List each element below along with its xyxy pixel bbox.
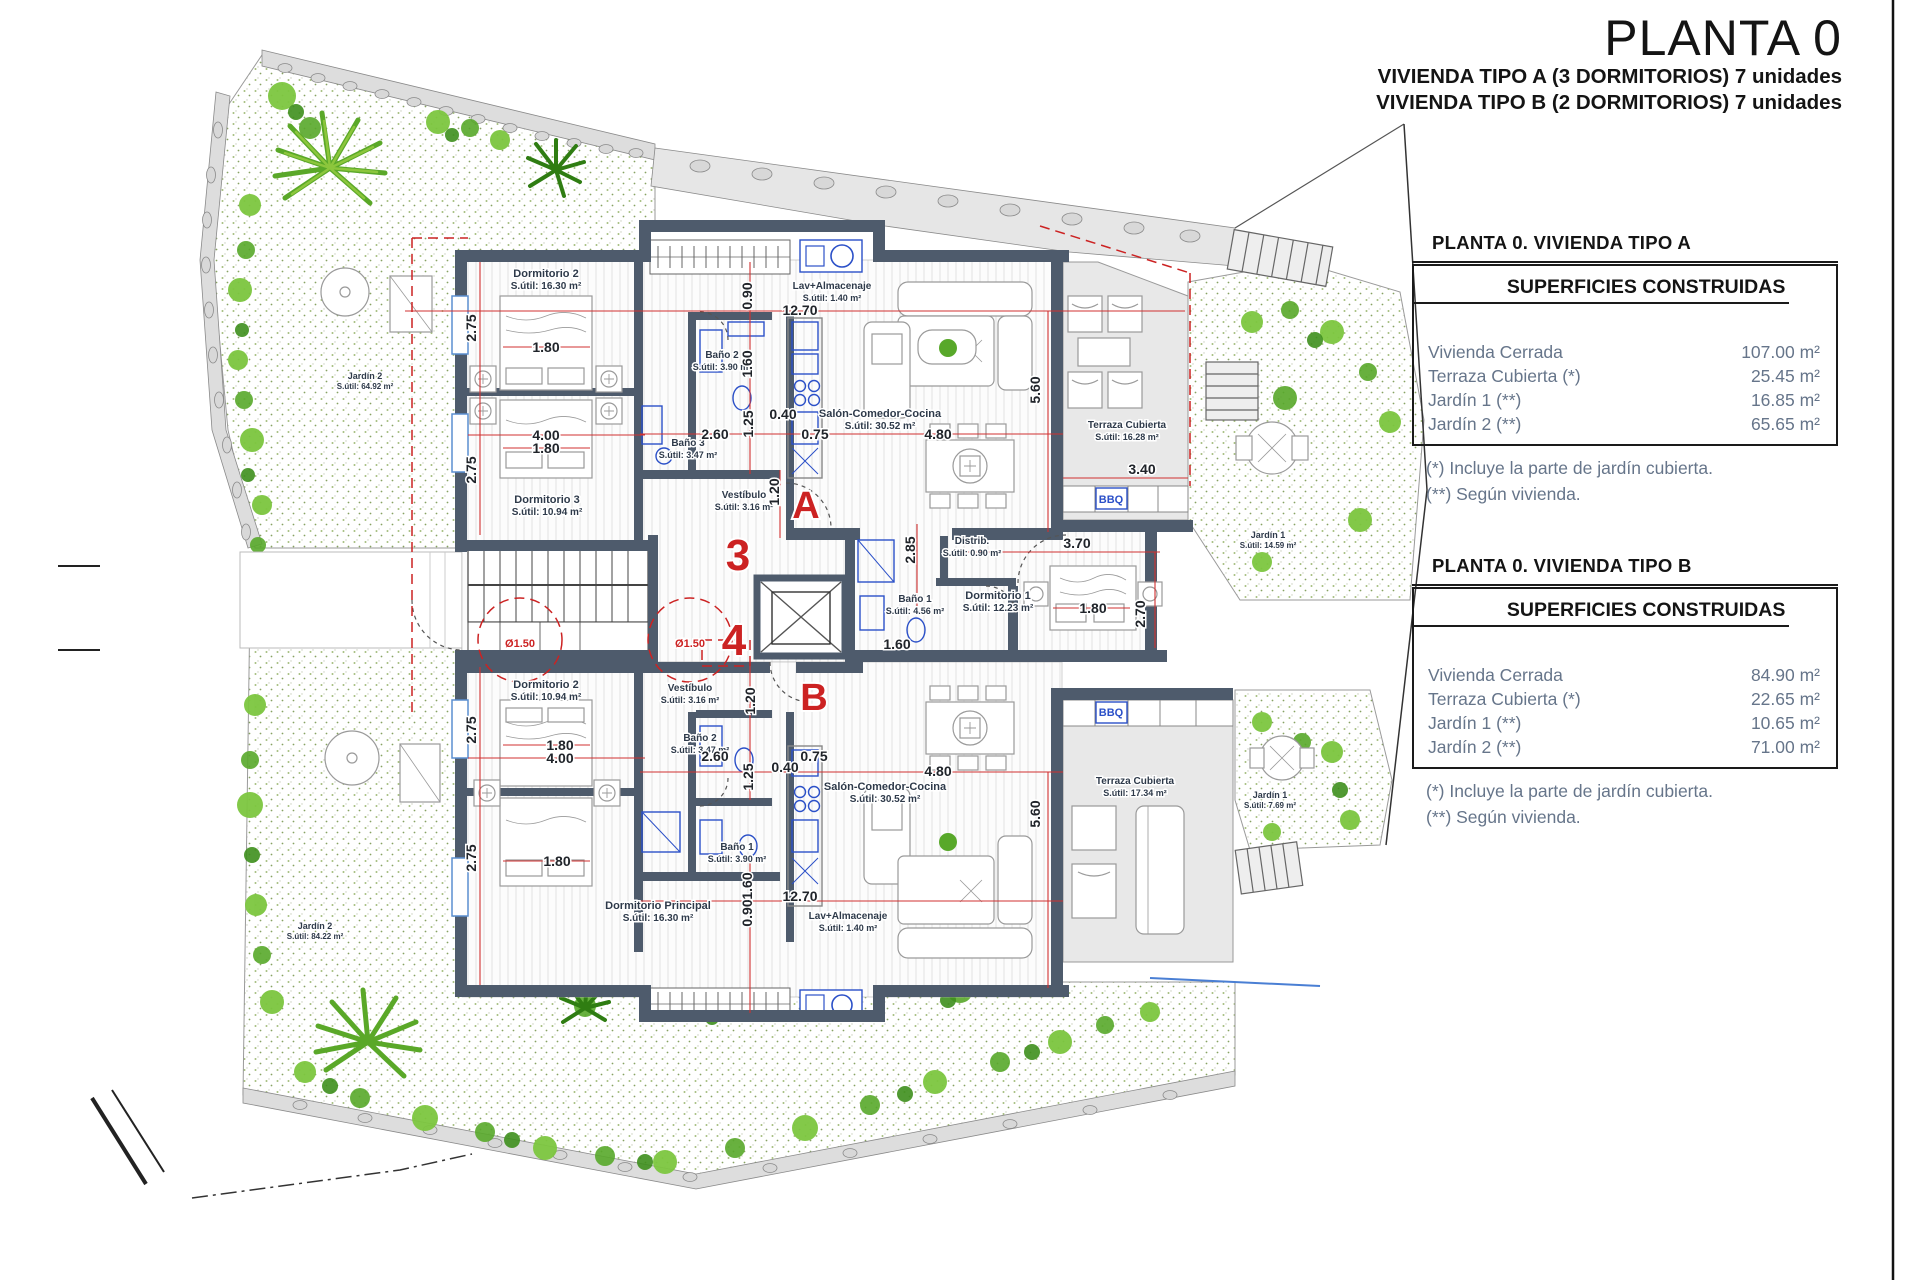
room-area-label: S.útil: 16.30 m² <box>623 913 694 924</box>
surface-row: Terraza Cubierta (*) 25.45 m² <box>1428 364 1820 388</box>
bbq-label: BBQ <box>1099 494 1124 506</box>
dimension-label: 2.70 <box>1132 600 1148 627</box>
dimension-label: 0.90 <box>739 899 755 926</box>
unit-marker-label: 3 <box>726 531 750 580</box>
dimension-label: 2.75 <box>463 456 479 483</box>
room-name-label: Dormitorio 2 <box>513 679 578 691</box>
room-name-label: Jardín 2 <box>348 371 383 381</box>
dimension-label: 5.60 <box>1027 800 1043 827</box>
room-name-label: Distrib. <box>955 536 990 547</box>
room-name-label: Vestíbulo <box>668 683 712 694</box>
room-area-label: S.útil: 30.52 m² <box>845 421 916 432</box>
dimension-label: 2.85 <box>902 536 918 563</box>
dimension-label: 0.90 <box>739 282 755 309</box>
room-area-label: S.útil: 7.69 m² <box>1244 801 1296 810</box>
dimension-label: 1.80 <box>532 440 559 456</box>
panel-a-notes: (*) Incluye la parte de jardín cubierta.… <box>1412 455 1838 507</box>
surface-value: 65.65 m² <box>1751 412 1820 436</box>
elevator <box>757 578 845 656</box>
room-area-label: S.útil: 3.16 m² <box>715 502 774 512</box>
dimension-label: 1.20 <box>742 687 758 714</box>
entrance-walkway <box>240 552 462 648</box>
surface-label: Vivienda Cerrada <box>1428 663 1563 687</box>
surface-value: 84.90 m² <box>1751 663 1820 687</box>
room-name-label: Dormitorio 1 <box>965 590 1030 602</box>
dimension-label: 1.25 <box>740 763 756 790</box>
dimension-label: 12.70 <box>782 888 817 904</box>
room-name-label: Baño 3 <box>671 438 705 449</box>
dimension-label: 0.75 <box>801 426 828 442</box>
dimension-label: 1.20 <box>766 478 782 505</box>
room-area-label: S.útil: 17.34 m² <box>1103 788 1167 798</box>
dimension-label: 3.40 <box>1128 461 1155 477</box>
title-block: PLANTA 0 VIVIENDA TIPO A (3 DORMITORIOS)… <box>1376 12 1842 116</box>
dimension-label: 1.60 <box>739 350 755 377</box>
unit-marker-label: B <box>800 677 827 719</box>
surface-label: Terraza Cubierta (*) <box>1428 687 1581 711</box>
room-area-label: S.útil: 1.40 m² <box>819 923 878 933</box>
note-line: (*) Incluye la parte de jardín cubierta. <box>1426 778 1838 804</box>
surface-row: Jardín 1 (**) 10.65 m² <box>1428 711 1820 735</box>
note-line: (*) Incluye la parte de jardín cubierta. <box>1426 455 1838 481</box>
surface-value: 16.85 m² <box>1751 388 1820 412</box>
dimension-label: 1.80 <box>543 853 570 869</box>
room-name-label: Terraza Cubierta <box>1096 776 1175 787</box>
panel-a-box-title: SUPERFICIES CONSTRUIDAS <box>1414 266 1789 304</box>
room-area-label: S.útil: 84.22 m² <box>287 932 344 941</box>
surface-value: 107.00 m² <box>1741 340 1820 364</box>
room-name-label: Dormitorio 2 <box>513 268 578 280</box>
room-name-label: Jardín 1 <box>1251 530 1286 540</box>
room-name-label: Lav+Almacenaje <box>809 911 888 922</box>
surface-row: Jardín 2 (**) 71.00 m² <box>1428 735 1820 759</box>
sheet-subtitle-a: VIVIENDA TIPO A (3 DORMITORIOS) 7 unidad… <box>1376 64 1842 90</box>
floor-plan-sheet: Dormitorio 2S.útil: 16.30 m²Dormitorio 3… <box>0 0 1920 1280</box>
panel-a-surfaces-box: SUPERFICIES CONSTRUIDAS Vivienda Cerrada… <box>1412 264 1838 446</box>
surface-label: Jardín 1 (**) <box>1428 388 1521 412</box>
dimension-label: 0.40 <box>769 406 796 422</box>
note-line: (**) Según vivienda. <box>1426 804 1838 830</box>
surface-label: Terraza Cubierta (*) <box>1428 364 1581 388</box>
sheet-title: PLANTA 0 <box>1376 12 1842 64</box>
room-name-label: Dormitorio Principal <box>605 900 711 912</box>
dimension-label: 2.60 <box>701 748 728 764</box>
room-area-label: S.útil: 3.90 m² <box>708 854 767 864</box>
room-name-label: Salón-Comedor-Cocina <box>824 781 947 793</box>
room-area-label: S.útil: 4.56 m² <box>886 606 945 616</box>
surface-label: Jardín 1 (**) <box>1428 711 1521 735</box>
dimension-label: 0.75 <box>800 748 827 764</box>
room-name-label: Baño 2 <box>705 350 739 361</box>
room-area-label: S.útil: 0.90 m² <box>943 548 1002 558</box>
surface-row: Vivienda Cerrada 107.00 m² <box>1428 340 1820 364</box>
room-area-label: S.útil: 64.92 m² <box>337 382 394 391</box>
dimension-label: 2.75 <box>463 844 479 871</box>
room-area-label: S.útil: 12.23 m² <box>963 603 1034 614</box>
room-area-label: S.útil: 3.16 m² <box>661 695 720 705</box>
surface-row: Jardín 2 (**) 65.65 m² <box>1428 412 1820 436</box>
dimension-label: 12.70 <box>782 302 817 318</box>
panel-tipo-b: PLANTA 0. VIVIENDA TIPO B SUPERFICIES CO… <box>1412 555 1838 830</box>
surface-label: Jardín 2 (**) <box>1428 412 1521 436</box>
panel-b-notes: (*) Incluye la parte de jardín cubierta.… <box>1412 778 1838 830</box>
surface-value: 10.65 m² <box>1751 711 1820 735</box>
dimension-label: 1.60 <box>883 636 910 652</box>
surface-row: Vivienda Cerrada 84.90 m² <box>1428 663 1820 687</box>
surface-value: 22.65 m² <box>1751 687 1820 711</box>
room-area-label: S.útil: 16.28 m² <box>1095 432 1159 442</box>
surface-value: 71.00 m² <box>1751 735 1820 759</box>
dimension-label: 1.80 <box>532 339 559 355</box>
dimension-label: Ø1.50 <box>505 638 535 650</box>
surface-row: Terraza Cubierta (*) 22.65 m² <box>1428 687 1820 711</box>
surface-label: Jardín 2 (**) <box>1428 735 1521 759</box>
room-area-label: S.útil: 30.52 m² <box>850 794 921 805</box>
room-name-label: Baño 1 <box>898 594 932 605</box>
room-name-label: Dormitorio 3 <box>514 494 579 506</box>
dimension-label: 1.80 <box>1079 600 1106 616</box>
room-area-label: S.útil: 10.94 m² <box>512 507 583 518</box>
dimension-label: 2.75 <box>463 314 479 341</box>
dimension-label: 0.40 <box>771 759 798 775</box>
dimension-label: 1.60 <box>739 872 755 899</box>
room-name-label: Salón-Comedor-Cocina <box>819 408 942 420</box>
unit-marker-label: 4 <box>722 616 747 665</box>
room-name-label: Baño 1 <box>720 842 754 853</box>
room-area-label: S.útil: 10.94 m² <box>511 692 582 703</box>
panel-b-box-title: SUPERFICIES CONSTRUIDAS <box>1414 589 1789 627</box>
room-area-label: S.útil: 14.59 m² <box>1240 541 1297 550</box>
dimension-label: 2.60 <box>701 426 728 442</box>
dimension-label: 4.80 <box>924 763 951 779</box>
sheet-subtitle-b: VIVIENDA TIPO B (2 DORMITORIOS) 7 unidad… <box>1376 90 1842 116</box>
panel-b-heading: PLANTA 0. VIVIENDA TIPO B <box>1412 555 1838 586</box>
room-name-label: Jardín 1 <box>1253 790 1288 800</box>
room-name-label: Jardín 2 <box>298 921 333 931</box>
dimension-label: 1.25 <box>740 410 756 437</box>
panel-tipo-a: PLANTA 0. VIVIENDA TIPO A SUPERFICIES CO… <box>1412 232 1838 507</box>
dimension-label: 4.00 <box>546 750 573 766</box>
surface-value: 25.45 m² <box>1751 364 1820 388</box>
surface-row: Jardín 1 (**) 16.85 m² <box>1428 388 1820 412</box>
room-name-label: Lav+Almacenaje <box>793 281 872 292</box>
dimension-label: 3.70 <box>1063 535 1090 551</box>
room-area-label: S.útil: 16.30 m² <box>511 281 582 292</box>
note-line: (**) Según vivienda. <box>1426 481 1838 507</box>
bbq-label: BBQ <box>1099 707 1124 719</box>
panel-b-surfaces-box: SUPERFICIES CONSTRUIDAS Vivienda Cerrada… <box>1412 587 1838 769</box>
room-name-label: Baño 2 <box>683 733 717 744</box>
unit-marker-label: A <box>792 485 819 527</box>
dimension-label: 2.75 <box>463 716 479 743</box>
staircase <box>468 548 648 652</box>
room-area-label: S.útil: 3.47 m² <box>659 450 718 460</box>
room-name-label: Terraza Cubierta <box>1088 420 1167 431</box>
surface-label: Vivienda Cerrada <box>1428 340 1563 364</box>
dimension-label: Ø1.50 <box>675 638 705 650</box>
dimension-label: 5.60 <box>1027 376 1043 403</box>
room-name-label: Vestíbulo <box>722 490 766 501</box>
panel-a-heading: PLANTA 0. VIVIENDA TIPO A <box>1412 232 1838 263</box>
dimension-label: 4.80 <box>924 426 951 442</box>
